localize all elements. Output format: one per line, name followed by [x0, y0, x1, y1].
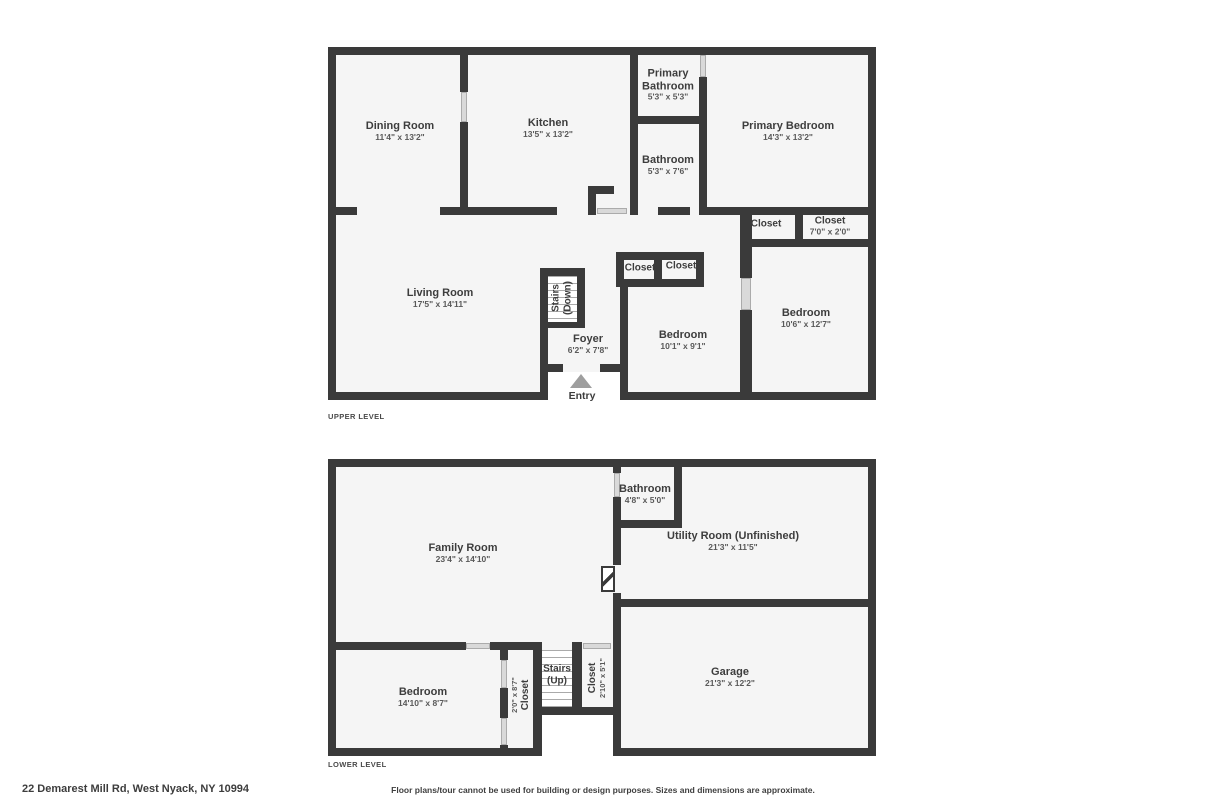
room-label-kitchen: Kitchen 13'5" x 13'2": [523, 117, 573, 139]
room-label-foyer: Foyer 6'2" x 7'8": [568, 333, 608, 355]
wall-segment: [336, 207, 357, 215]
level-label-upper: UPPER LEVEL: [328, 412, 385, 421]
wall-segment: [620, 287, 628, 400]
wall-segment: [613, 593, 621, 756]
door-marker: [741, 278, 751, 310]
wall-segment: [500, 688, 508, 718]
room-label-utility-room: Utility Room (Unfinished) 21'3" x 11'5": [667, 530, 799, 552]
wall-segment: [328, 392, 548, 400]
wall-segment: [613, 748, 876, 756]
wall-segment: [620, 392, 876, 400]
wall-segment: [460, 55, 468, 92]
door-marker: [597, 208, 627, 214]
room-label-stairs-up: Stairs (Up): [543, 664, 571, 687]
room-label-primary-bathroom: Primary Bathroom 5'3" x 5'3": [636, 67, 700, 102]
wall-segment: [868, 47, 876, 400]
wall-segment: [674, 459, 682, 528]
room-label-bathroom-upper: Bathroom 5'3" x 7'6": [642, 154, 694, 176]
room-label-living-room: Living Room 17'5" x 14'11": [407, 287, 474, 309]
wall-segment: [328, 47, 336, 400]
wall-segment: [613, 520, 682, 528]
door-marker: [466, 643, 490, 649]
wall-segment: [588, 186, 614, 194]
wall-segment: [613, 599, 876, 607]
room-label-closet-understairs: Closet 2'10" x 5'1": [587, 658, 607, 698]
room-label-closet-hall-right: Closet: [666, 260, 697, 272]
wall-segment: [328, 748, 542, 756]
entry-arrow-icon: [570, 374, 592, 388]
wall-segment: [328, 459, 336, 756]
room-label-bedroom-right: Bedroom 10'6" x 12'7": [781, 307, 831, 329]
room-label-bedroom-lower: Bedroom 14'10" x 8'7": [398, 686, 448, 708]
wall-segment: [795, 212, 803, 247]
wall-segment: [868, 459, 876, 756]
wall-segment: [336, 642, 466, 650]
wall-segment: [616, 252, 704, 260]
wall-segment: [703, 207, 868, 215]
wall-segment: [630, 116, 707, 124]
wall-segment: [328, 459, 876, 467]
wall-segment: [490, 642, 542, 650]
room-label-family-room: Family Room 23'4" x 14'10": [428, 542, 497, 564]
wall-segment: [613, 497, 621, 565]
room-label-stairs-down: Stairs (Down): [551, 281, 574, 315]
entry-label: Entry: [569, 390, 596, 402]
level-label-lower: LOWER LEVEL: [328, 760, 387, 769]
wall-segment: [500, 650, 508, 660]
disclaimer-text: Floor plans/tour cannot be used for buil…: [391, 785, 815, 795]
room-label-bedroom-middle: Bedroom 10'1" x 9'1": [659, 329, 707, 351]
wall-segment: [328, 47, 876, 55]
door-marker: [461, 92, 467, 122]
wall-segment: [740, 310, 752, 400]
room-label-garage: Garage 21'3" x 12'2": [705, 666, 755, 688]
wall-segment: [699, 77, 707, 215]
floor-plan-canvas: Dining Room 11'4" x 13'2" Kitchen 13'5" …: [0, 0, 1206, 804]
wall-segment: [658, 207, 690, 215]
wall-segment: [572, 642, 582, 715]
room-label-closet-hall-left: Closet: [625, 262, 656, 274]
door-marker: [501, 660, 507, 688]
door-marker: [583, 643, 611, 649]
room-label-dining-room: Dining Room 11'4" x 13'2": [366, 120, 434, 142]
door-swing-marker: [601, 566, 615, 592]
room-label-bathroom-lower: Bathroom 4'8" x 5'0": [619, 483, 671, 505]
room-label-closet-bedroom: Closet 2'0" x 8'7": [511, 677, 531, 713]
wall-segment: [540, 268, 548, 400]
wall-segment: [440, 207, 557, 215]
wall-segment: [577, 268, 585, 328]
door-marker: [501, 718, 507, 745]
room-label-closet-small: Closet: [751, 218, 782, 230]
room-label-closet-primary: Closet 7'0" x 2'0": [810, 215, 850, 236]
address-text: 22 Demarest Mill Rd, West Nyack, NY 1099…: [22, 783, 249, 795]
door-marker: [700, 55, 706, 77]
wall-segment: [745, 239, 868, 247]
room-label-primary-bedroom: Primary Bedroom 14'3" x 13'2": [742, 120, 834, 142]
wall-segment: [533, 650, 542, 756]
wall-segment: [460, 122, 468, 215]
wall-opening: [542, 715, 613, 748]
